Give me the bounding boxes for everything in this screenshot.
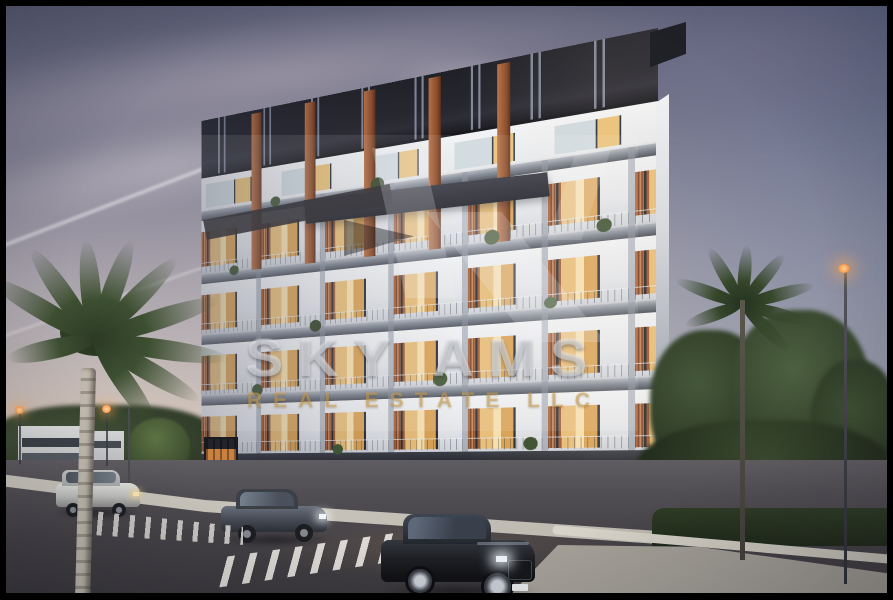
watermark-subtitle-text: REAL ESTATE LLC — [204, 389, 644, 413]
logo-stroke — [547, 150, 610, 240]
sky-ams-logo — [330, 142, 620, 342]
frame-border — [0, 593, 893, 600]
architectural-rendering: SKY AMS REAL ESTATE LLC — [0, 0, 893, 600]
watermark-brand-text: SKY AMS — [191, 328, 657, 389]
frame-border — [0, 0, 893, 6]
frame-border — [0, 0, 6, 600]
frame-border — [887, 0, 893, 600]
rendering-frame: SKY AMS REAL ESTATE LLC — [0, 0, 893, 600]
